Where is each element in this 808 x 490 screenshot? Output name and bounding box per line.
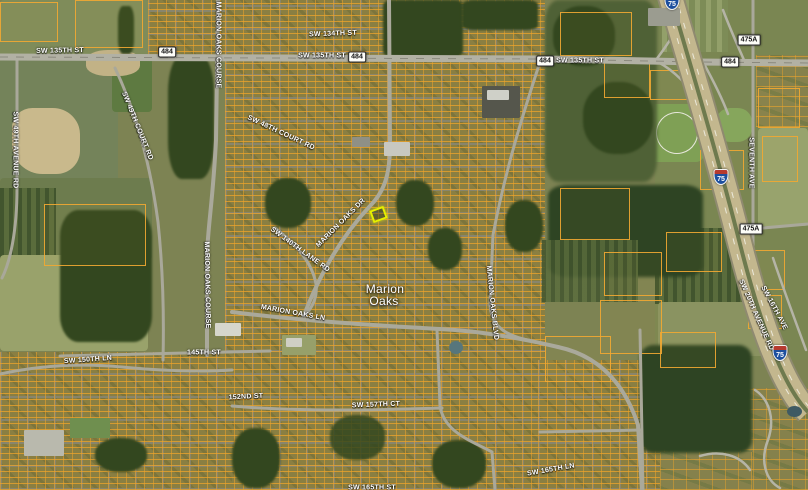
- route-shield-475a-south: 475A: [740, 224, 763, 235]
- route-shield-484-3: 484: [536, 56, 554, 67]
- interstate-shield-75-top-edge: 75: [665, 0, 680, 10]
- satellite-map-view[interactable]: SW 135TH STSW 135TH STSW 135TH STSW 134T…: [0, 0, 808, 490]
- route-shield-475a-north: 475A: [738, 35, 761, 46]
- interstate-shield-75-north: 75: [714, 169, 729, 185]
- route-shield-484-4: 484: [721, 57, 739, 68]
- route-shield-484-2: 484: [348, 52, 366, 63]
- interstate-shield-75-south: 75: [773, 345, 788, 361]
- route-shields-layer: 484484484484475A475A757575: [0, 0, 808, 490]
- route-shield-484-1: 484: [158, 47, 176, 58]
